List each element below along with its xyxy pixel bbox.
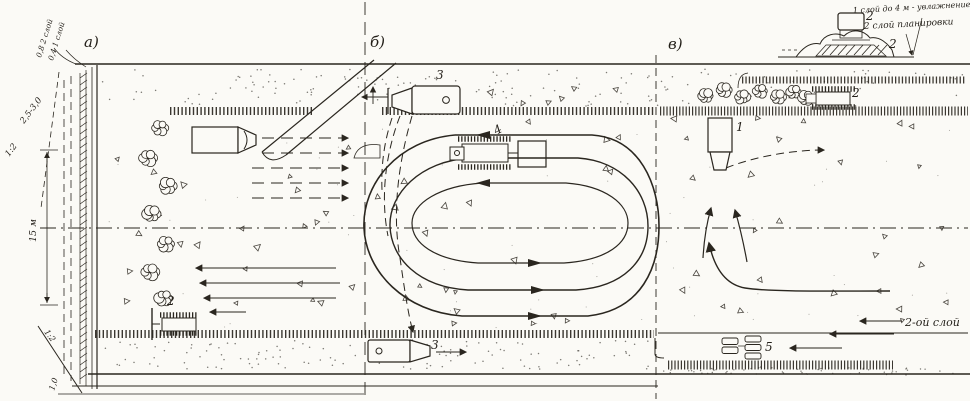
scraper-v-label: 1: [736, 120, 744, 134]
scraper-b-top-label: 3: [436, 68, 444, 82]
compactor-b: 4: [450, 122, 546, 167]
left-slope-edge: [38, 48, 97, 393]
scraper-b-bottom: 3: [368, 338, 439, 362]
scraper-circuit-oval: [362, 87, 659, 352]
inset-layer-label: 2: [888, 37, 897, 51]
scheme-canvas: 2 3 4 3 1 2 5 2 2 а) б) в) 0,8 2 слой 0,…: [0, 0, 970, 401]
access-ramp: [262, 60, 396, 160]
scraper-b-top: 3: [388, 68, 460, 114]
section-v-turn-paths: [703, 150, 902, 348]
tractor-v-label: 2: [851, 86, 860, 100]
height-dimension: [40, 150, 58, 305]
note-layer1: 1 слой до 4 м - увлажнение: [853, 0, 970, 15]
bushes-section-v: [698, 83, 814, 106]
inset-compaction-detail: 2 2: [778, 9, 922, 57]
earthwork-outline: [58, 64, 970, 394]
tractor-v: 2: [806, 86, 860, 107]
drawing-root: 2 3 4 3 1 2 5 2 2 а) б) в) 0,8 2 слой 0,…: [0, 0, 970, 401]
scraper-v: 1: [708, 118, 744, 170]
roller-v-label: 5: [765, 340, 773, 354]
scraper-b-bottom-label: 3: [431, 338, 439, 352]
berm-width-label: 1,0: [47, 377, 59, 392]
berm-width-range-label: 2,5-3,0: [18, 95, 45, 126]
second-layer-label: 2-ой слой: [904, 316, 960, 329]
note-layer2: 2 слой планировки: [863, 17, 954, 32]
upper-slope-ratio-label: 1:2: [3, 142, 19, 159]
lower-slope-ratio-label: 1:2: [42, 328, 57, 344]
section-a-label: а): [84, 33, 99, 51]
bulldozer-a-label: 2: [166, 294, 175, 308]
section-b-label: б): [370, 33, 385, 51]
axis-lines: [40, 2, 968, 399]
bushes-section-a: [139, 121, 178, 306]
scraper-a-top: [192, 127, 256, 153]
height-dimension-label: 15 м: [28, 219, 39, 242]
pneumatic-roller-v: 5: [722, 336, 773, 359]
section-v-label: в): [668, 35, 683, 53]
section-a-haul-arrows: [196, 138, 348, 312]
